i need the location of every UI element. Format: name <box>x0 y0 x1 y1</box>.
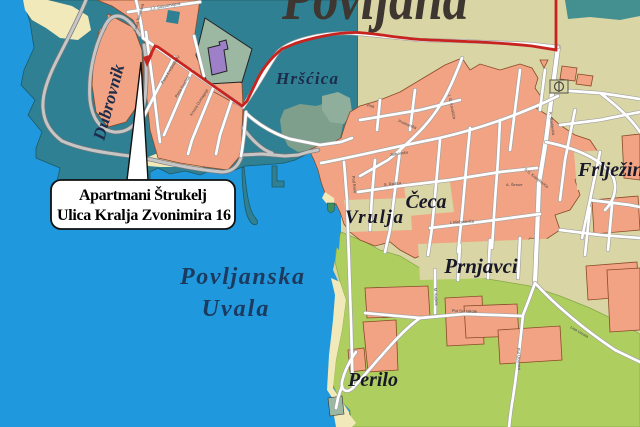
svg-text:Vrulja: Vrulja <box>345 207 404 228</box>
svg-text:Uvala: Uvala <box>202 296 271 322</box>
svg-text:Ulica Kralja Zvonimira 16: Ulica Kralja Zvonimira 16 <box>57 207 231 224</box>
svg-text:Put Sv. Nikole: Put Sv. Nikole <box>452 308 478 314</box>
svg-text:Apartmani Štrukelj: Apartmani Štrukelj <box>79 185 207 204</box>
svg-text:Čeca: Čeca <box>405 189 446 213</box>
svg-text:Povljana: Povljana <box>281 0 468 33</box>
svg-text:Frlježin: Frlježin <box>577 159 640 181</box>
svg-text:Povljanska: Povljanska <box>179 264 304 290</box>
svg-text:A. Šenoe: A. Šenoe <box>506 182 523 187</box>
svg-text:Hršćica: Hršćica <box>275 69 339 88</box>
svg-text:Perilo: Perilo <box>347 369 398 391</box>
svg-text:Prnjavci: Prnjavci <box>443 254 518 278</box>
